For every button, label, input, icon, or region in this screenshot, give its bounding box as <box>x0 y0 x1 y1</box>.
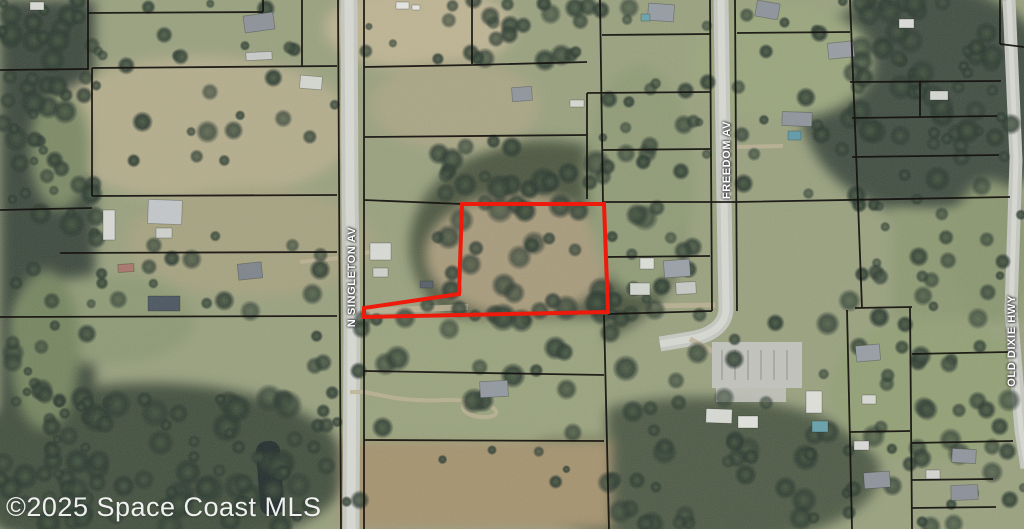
photo-grain <box>0 0 1024 529</box>
aerial-map-viewport: N SINGLETON AV FREEDOM AV OLD DIXIE HWY … <box>0 0 1024 529</box>
mls-copyright-watermark: ©2025 Space Coast MLS <box>6 492 322 523</box>
aerial-basemap-canvas <box>0 0 1024 529</box>
